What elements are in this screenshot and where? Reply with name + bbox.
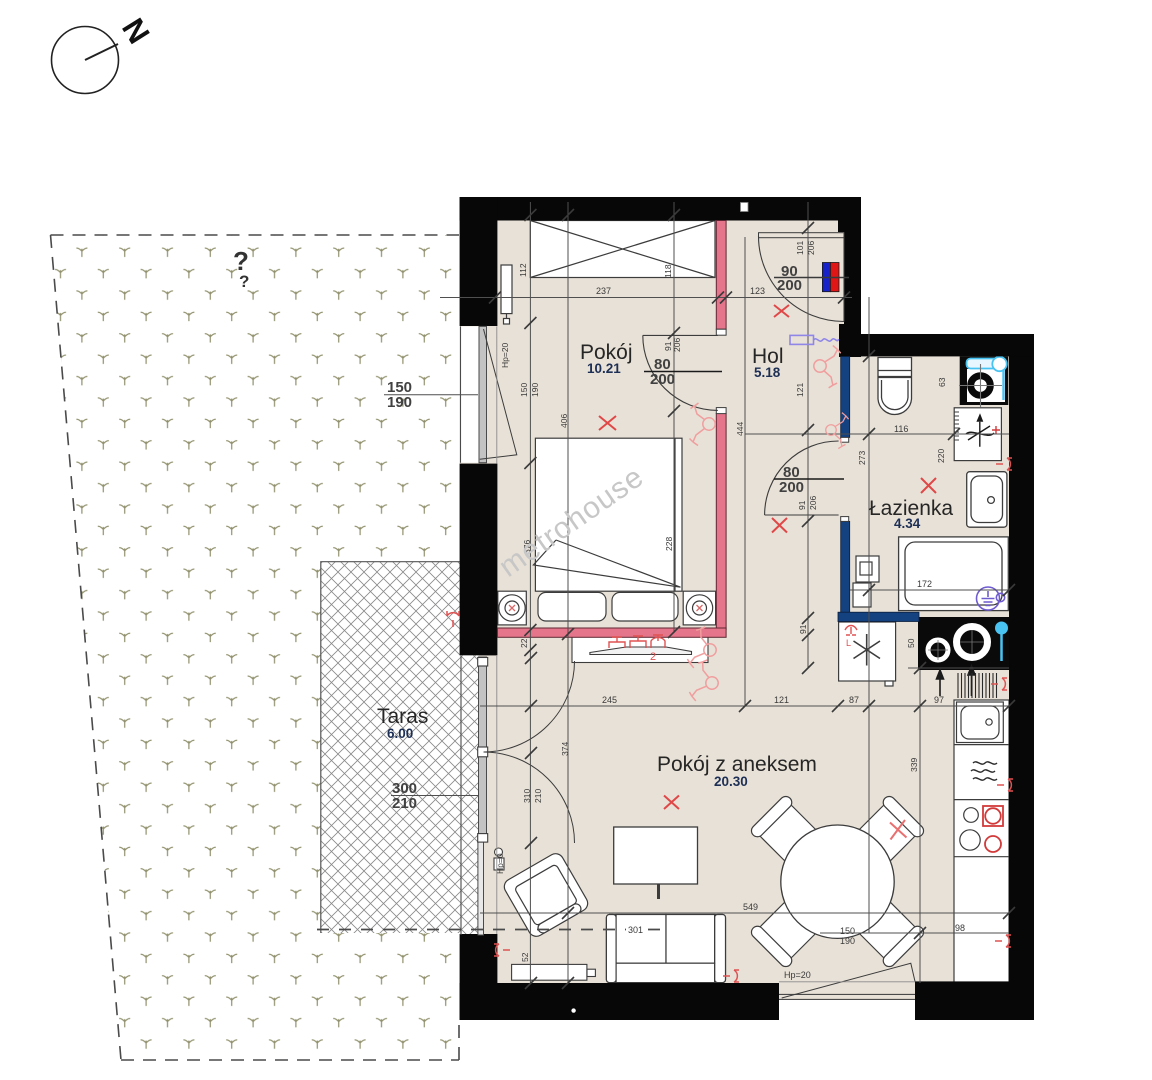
svg-text:Hp=20: Hp=20: [500, 342, 510, 368]
svg-text:2: 2: [650, 651, 656, 663]
svg-text:210: 210: [392, 795, 417, 812]
svg-text:228: 228: [664, 537, 674, 551]
svg-text:172: 172: [917, 579, 932, 589]
svg-text:10.21: 10.21: [587, 361, 621, 376]
svg-text:52: 52: [520, 952, 530, 962]
svg-text:190: 190: [387, 394, 412, 411]
svg-text:123: 123: [750, 286, 765, 296]
svg-text:20.30: 20.30: [714, 774, 748, 789]
svg-text:444: 444: [735, 422, 745, 436]
svg-text:273: 273: [857, 451, 867, 465]
svg-text:112: 112: [518, 263, 528, 277]
svg-text:150: 150: [519, 383, 529, 397]
svg-text:310: 310: [522, 789, 532, 803]
svg-text:50: 50: [906, 638, 916, 648]
svg-text:200: 200: [650, 371, 675, 388]
svg-text:22: 22: [519, 638, 529, 648]
svg-text:91: 91: [798, 624, 808, 634]
svg-text:150: 150: [840, 926, 855, 936]
svg-text:97: 97: [934, 695, 944, 705]
svg-text:190: 190: [530, 383, 540, 397]
svg-text:Taras: Taras: [377, 705, 428, 728]
svg-text:98: 98: [955, 923, 965, 933]
svg-text:?: ?: [239, 272, 249, 291]
svg-text:190: 190: [840, 936, 855, 946]
svg-text:206: 206: [672, 338, 682, 352]
svg-text:63: 63: [937, 377, 947, 387]
svg-text:L: L: [846, 638, 851, 648]
svg-text:301: 301: [628, 925, 643, 935]
svg-text:121: 121: [795, 383, 805, 397]
svg-text:200: 200: [779, 479, 804, 496]
svg-text:200: 200: [777, 277, 802, 294]
svg-text:Pokój z aneksem: Pokój z aneksem: [657, 753, 817, 776]
svg-text:220: 220: [936, 449, 946, 463]
svg-text:237: 237: [596, 286, 611, 296]
svg-text:87: 87: [849, 695, 859, 705]
svg-text:4.34: 4.34: [894, 516, 921, 531]
svg-text:6.00: 6.00: [387, 726, 413, 741]
svg-text:245: 245: [602, 695, 617, 705]
svg-text:5.18: 5.18: [754, 365, 781, 380]
svg-text:121: 121: [774, 695, 789, 705]
svg-text:91: 91: [797, 500, 807, 510]
svg-text:374: 374: [560, 742, 570, 756]
svg-text:118: 118: [663, 264, 673, 278]
svg-text:210: 210: [533, 789, 543, 803]
svg-text:206: 206: [806, 241, 816, 255]
svg-text:Hp=0: Hp=0: [495, 853, 505, 874]
svg-text:Hp=20: Hp=20: [784, 970, 811, 980]
svg-text:549: 549: [743, 902, 758, 912]
svg-text:406: 406: [559, 414, 569, 428]
svg-text:206: 206: [808, 496, 818, 510]
svg-text:101: 101: [795, 241, 805, 255]
svg-text:339: 339: [909, 758, 919, 772]
svg-text:116: 116: [894, 424, 908, 434]
